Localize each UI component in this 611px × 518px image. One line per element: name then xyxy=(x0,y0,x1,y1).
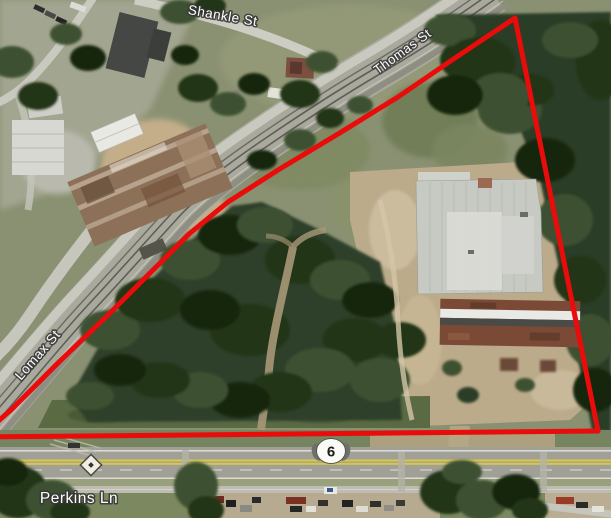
street-label-perkins: Perkins Ln xyxy=(40,490,118,507)
roof-structure xyxy=(478,178,492,188)
map-canvas: 6 Shankle St Thomas St Lomax St Perkins … xyxy=(0,0,611,518)
aerial-map: 6 Shankle St Thomas St Lomax St Perkins … xyxy=(0,0,611,518)
brown-roof-building xyxy=(440,299,581,347)
route-number: 6 xyxy=(327,444,335,461)
